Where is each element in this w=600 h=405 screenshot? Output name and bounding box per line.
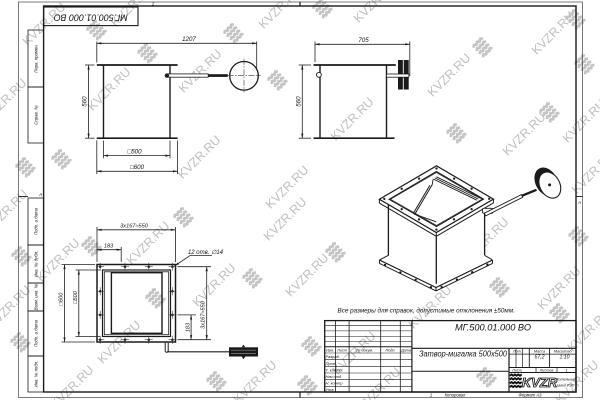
svg-text:Затвор-мигалка 500х500: Затвор-мигалка 500х500 — [419, 349, 507, 358]
svg-text:Котельный: Котельный — [557, 377, 577, 381]
svg-text:Подп. и дата: Подп. и дата — [34, 319, 39, 347]
svg-text:Масса: Масса — [534, 350, 545, 354]
svg-text:□600: □600 — [59, 292, 65, 306]
svg-text:А: А — [38, 192, 42, 197]
svg-text:3х167≈550: 3х167≈550 — [201, 300, 207, 329]
svg-text:Справ. №: Справ. № — [34, 105, 39, 125]
svg-text:Лит.: Лит. — [512, 350, 522, 354]
svg-text:Инв. № дубл.: Инв. № дубл. — [34, 251, 39, 277]
svg-text:завод РЭП: завод РЭП — [556, 383, 575, 387]
svg-text:KVZR: KVZR — [522, 375, 558, 390]
svg-text:Копировал: Копировал — [445, 392, 466, 397]
svg-text:Листов: Листов — [539, 369, 554, 373]
svg-text:560: 560 — [295, 96, 302, 107]
svg-text:А: А — [577, 200, 581, 205]
svg-text:Все размеры для справок, допус: Все размеры для справок, допустимые откл… — [338, 307, 515, 315]
svg-text:705: 705 — [358, 37, 369, 44]
svg-text:67,2: 67,2 — [534, 355, 544, 361]
svg-text:Лист: Лист — [511, 369, 522, 373]
svg-text:Масштаб: Масштаб — [554, 350, 573, 354]
svg-text:□500: □500 — [73, 290, 79, 304]
svg-text:Взам. инв. №: Взам. инв. № — [34, 283, 39, 310]
svg-text:560: 560 — [82, 96, 89, 107]
svg-text:□600: □600 — [130, 164, 145, 171]
svg-text:Изм.: Изм. — [326, 348, 334, 352]
svg-text:Н. контр: Н. контр — [326, 381, 344, 386]
svg-text:183: 183 — [185, 322, 191, 332]
svg-text:12 отв. ∅14: 12 отв. ∅14 — [188, 249, 224, 256]
svg-text:Формат А3: Формат А3 — [519, 392, 543, 397]
svg-text:1: 1 — [565, 369, 567, 373]
svg-text:□500: □500 — [127, 148, 142, 155]
svg-text:Подп. и дата: Подп. и дата — [34, 207, 39, 235]
svg-text:МГ.500.01.000 ВО: МГ.500.01.000 ВО — [455, 323, 531, 333]
svg-text:Нач.отд: Нач.отд — [326, 374, 343, 379]
svg-text:1:10: 1:10 — [559, 355, 569, 361]
svg-text:Инв. № подл.: Инв. № подл. — [34, 361, 39, 388]
svg-text:1: 1 — [430, 392, 432, 397]
svg-text:Дата: Дата — [400, 348, 411, 352]
svg-text:Утв.: Утв. — [326, 387, 335, 392]
svg-text:3х167≈550: 3х167≈550 — [120, 223, 149, 229]
svg-text:Пров.: Пров. — [326, 361, 337, 366]
svg-text:183: 183 — [104, 243, 114, 249]
svg-text:Т. контр.: Т. контр. — [326, 368, 343, 373]
svg-text:МГ.500.01.000 ВО: МГ.500.01.000 ВО — [54, 13, 128, 23]
svg-text:№ докум.: № докум. — [356, 348, 373, 352]
svg-text:2: 2 — [151, 2, 155, 7]
svg-text:1207: 1207 — [182, 36, 196, 43]
svg-text:Лист: Лист — [336, 348, 347, 352]
svg-text:Разраб.: Разраб. — [326, 354, 340, 359]
svg-text:Подп.: Подп. — [385, 348, 395, 352]
svg-text:Перв. примен.: Перв. примен. — [34, 44, 39, 73]
